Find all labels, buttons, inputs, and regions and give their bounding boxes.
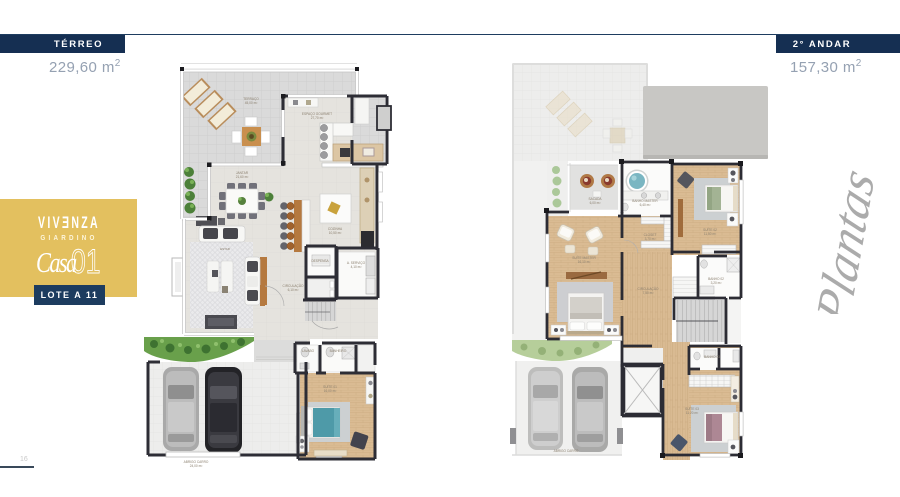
svg-text:7,50 m²: 7,50 m²	[643, 291, 654, 295]
svg-text:BANHEIRO: BANHEIRO	[330, 349, 347, 353]
svg-text:6,10 m²: 6,10 m²	[288, 288, 299, 292]
svg-text:21,60 m²: 21,60 m²	[236, 175, 249, 179]
svg-text:01: 01	[71, 243, 101, 281]
svg-text:LAVABO: LAVABO	[302, 349, 315, 353]
svg-text:3,70 m²: 3,70 m²	[645, 237, 656, 241]
svg-text:16,00 m²: 16,00 m²	[324, 389, 337, 393]
svg-text:27,70 m²: 27,70 m²	[311, 116, 324, 120]
svg-text:11,50 m²: 11,50 m²	[704, 232, 716, 236]
svg-text:Plantas: Plantas	[806, 160, 885, 314]
svg-text:10,50 m²: 10,50 m²	[329, 231, 342, 235]
svg-text:DESPENSA: DESPENSA	[311, 259, 329, 263]
svg-text:24,00 m²: 24,00 m²	[190, 464, 203, 468]
svg-text:11,20 m²: 11,20 m²	[686, 411, 698, 415]
svg-text:BANHO 03: BANHO 03	[704, 355, 720, 359]
svg-text:ABRIGO CARRO: ABRIGO CARRO	[554, 449, 579, 453]
svg-text:VIVƎNZA: VIVƎNZA	[38, 212, 100, 231]
svg-text:45,00 m²: 45,00 m²	[245, 101, 258, 105]
svg-text:16,10 m²: 16,10 m²	[578, 260, 591, 264]
svg-text:6,40 m²: 6,40 m²	[640, 203, 651, 207]
svg-text:GIARDINO: GIARDINO	[40, 235, 97, 242]
svg-text:6,00 m²: 6,00 m²	[590, 201, 601, 205]
svg-text:4,10 m²: 4,10 m²	[351, 265, 362, 269]
svg-text:ESTAR: ESTAR	[220, 247, 231, 251]
svg-text:3,20 m²: 3,20 m²	[711, 281, 722, 285]
